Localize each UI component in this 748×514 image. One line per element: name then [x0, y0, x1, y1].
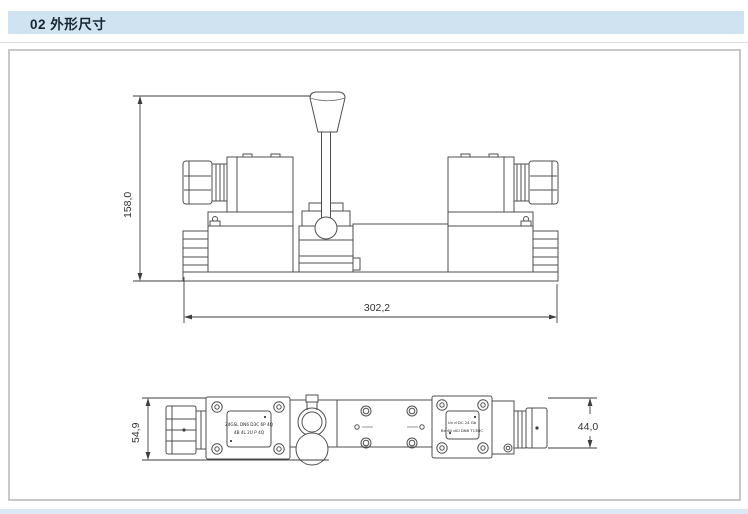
left-coil-block: 24GSL DN6 D3C 6P 4Q 4B 4L 2U P 4Q [206, 397, 290, 459]
dim-label-440: 44,0 [578, 421, 599, 433]
lever-shaft [322, 132, 331, 220]
right-nameplate-line2: Bn 60 dGl DN6 T13DC [441, 428, 483, 433]
manifold-bottom [337, 400, 432, 448]
valve-base-plate [183, 272, 558, 281]
right-nameplate [446, 411, 479, 439]
right-lower-plug [533, 231, 558, 272]
bottom-view: 24GSL DN6 D3C 6P 4Q 4B 4L 2U P 4Q [130, 395, 598, 465]
dim-label-158: 158,0 [122, 192, 134, 218]
valve-middle-body [353, 224, 448, 272]
left-lower-plug [183, 231, 208, 272]
lever-knob [310, 92, 345, 132]
section-header-bar: 02 外形尺寸 [8, 11, 744, 34]
dim-bottom-width: 44,0 [548, 398, 598, 448]
left-solenoid-front [183, 154, 293, 272]
section-title: 02 外形尺寸 [30, 13, 106, 33]
right-coil-block: Un d DC 24 Gb Bn 60 dGl DN6 T13DC [432, 396, 492, 458]
footer-accent-strip [0, 509, 748, 514]
right-nameplate-line1: Un d DC 24 Gb [448, 420, 477, 425]
dim-label-302: 302,2 [364, 302, 390, 314]
left-connector-bottom [166, 406, 206, 454]
lever-pivot-bottom [290, 395, 337, 465]
right-connector-bottom [492, 401, 547, 454]
right-connector-cap [529, 161, 558, 204]
front-view: 158,0 302,2 [122, 92, 558, 323]
outline-dimension-drawing: 158,0 302,2 [10, 51, 739, 499]
dimension-drawing-frame: 158,0 302,2 [8, 49, 741, 501]
lever-assembly [299, 92, 360, 272]
left-connector-cap [183, 161, 212, 204]
left-nameplate-line2: 4B 4L 2U P 4Q [234, 430, 265, 435]
header-divider [0, 42, 748, 43]
left-nameplate-line1: 24GSL DN6 D3C 6P 4Q [225, 422, 274, 427]
dim-front-width: 302,2 [184, 277, 557, 323]
right-solenoid-front [448, 154, 558, 272]
dim-label-549: 54,9 [130, 422, 142, 443]
lever-ball-joint [315, 217, 337, 239]
